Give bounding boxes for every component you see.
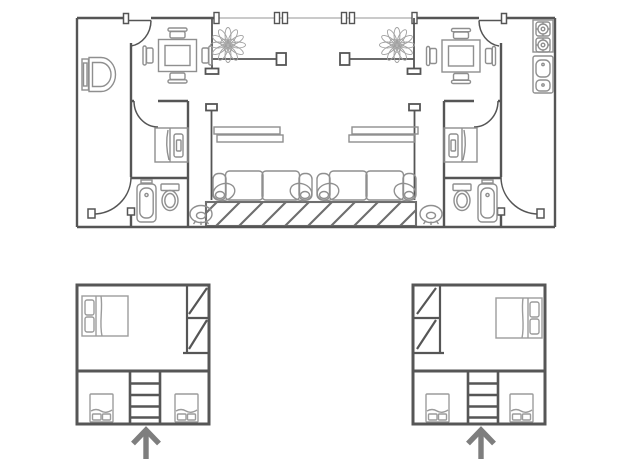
kitchen-sink xyxy=(533,56,553,93)
entry-door-top-left xyxy=(124,14,152,47)
bathtub-right xyxy=(478,180,497,222)
single-bed xyxy=(426,394,449,422)
up-arrow-left xyxy=(133,430,159,459)
up-arrow-right xyxy=(468,430,494,459)
lower-plan-left xyxy=(77,285,209,424)
double-bed xyxy=(496,298,542,338)
main-plan-furniture xyxy=(82,20,553,225)
bedroom-door-left xyxy=(134,101,158,127)
wall-shelf-right xyxy=(349,127,418,142)
bathtub-left xyxy=(137,180,156,222)
toilet-right xyxy=(453,184,471,211)
bed-right xyxy=(444,128,477,162)
lower-left-furniture xyxy=(82,296,198,422)
bath-door-right xyxy=(498,177,545,218)
bedroom-door-right xyxy=(474,101,498,127)
single-bed xyxy=(90,394,113,422)
wardrobe xyxy=(413,285,444,353)
sofa-left xyxy=(211,171,314,203)
double-bed xyxy=(82,296,128,336)
toilet-left xyxy=(161,184,179,211)
bath-door-left xyxy=(88,177,135,218)
partitions xyxy=(206,18,421,200)
up-arrows xyxy=(133,430,494,459)
floor-plan-diagram xyxy=(0,0,640,461)
wall-hung-toilet xyxy=(82,58,115,92)
lower-right-walls xyxy=(413,285,545,424)
hatched-rug xyxy=(190,199,427,229)
staircase-left xyxy=(130,371,160,424)
pouf-left xyxy=(190,206,212,226)
floor-plan-svg xyxy=(0,0,640,461)
single-bed xyxy=(175,394,198,422)
dining-table-left xyxy=(143,28,212,83)
single-bed xyxy=(510,394,533,422)
plant-right xyxy=(380,28,415,63)
staircase-right xyxy=(468,371,498,424)
wall-shelf-left xyxy=(214,127,283,142)
partition-right xyxy=(340,18,421,200)
kitchen-stove xyxy=(533,20,553,52)
bed-left xyxy=(155,128,188,162)
plants xyxy=(211,28,415,63)
lower-right-furniture xyxy=(426,298,542,422)
lower-left-walls xyxy=(77,285,209,424)
entry-door-top-right xyxy=(479,14,507,47)
pouf-right xyxy=(420,206,442,226)
lower-plan-right xyxy=(413,285,545,424)
sofa-right xyxy=(315,171,418,203)
plant-left xyxy=(211,28,246,63)
wardrobe xyxy=(183,285,209,353)
